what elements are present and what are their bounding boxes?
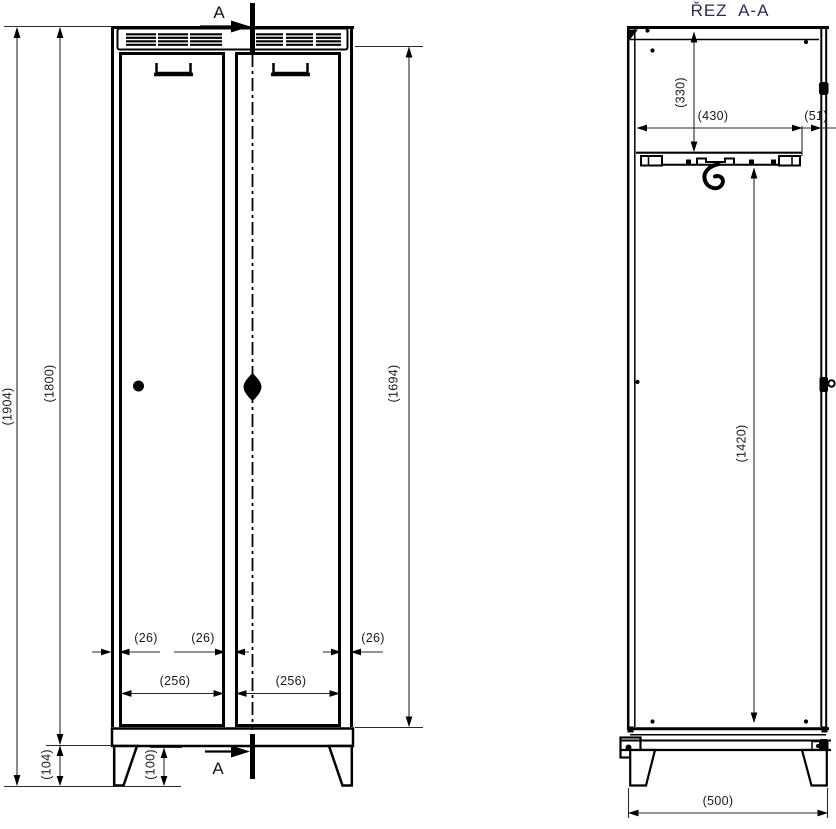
screw-dot: [650, 719, 654, 723]
arrowhead: [818, 810, 829, 817]
vent-slat-group: [256, 34, 283, 45]
technical-drawing-locker: ŘEZ A-A A A (1904) (1800) (104) (100) (1…: [0, 0, 836, 829]
section-back-foot: [630, 750, 655, 786]
lock-ring: [828, 380, 834, 386]
right-door-lock-icon: [244, 373, 262, 401]
dim-label-hanging-height: (1420): [736, 414, 749, 474]
dim-label-plinth-height: (104): [41, 735, 54, 795]
screw-dot: [645, 28, 649, 32]
section-marker-top: A: [205, 4, 233, 22]
arrowhead: [637, 125, 648, 132]
arrowhead: [57, 746, 64, 757]
arrowhead: [101, 649, 112, 656]
arrowhead: [161, 776, 168, 786]
bolt: [749, 160, 754, 165]
front-right-foot: [329, 746, 352, 786]
section-view-title: ŘEZ A-A: [630, 2, 830, 20]
arrowhead: [792, 125, 803, 132]
bolt: [686, 160, 691, 165]
corner-gusset: [630, 30, 639, 41]
vent-slat-group: [190, 34, 222, 45]
dim-label-right-door-width: (256): [261, 675, 321, 688]
dim-label-shelf-width: (430): [683, 110, 743, 123]
arrowhead: [406, 47, 413, 58]
dim-label-foot-height: (100): [145, 735, 158, 795]
coat-hook-icon: [704, 164, 723, 188]
card-holder-left: [157, 63, 191, 73]
hinge-top: [819, 82, 829, 95]
dim-label-front-gap: (51): [794, 110, 836, 123]
screw-dot: [650, 48, 654, 52]
screw-dot: [804, 719, 808, 723]
arrowhead: [406, 717, 413, 728]
arrowhead: [751, 713, 758, 724]
screw-dot: [635, 380, 639, 384]
screw-dot: [804, 40, 808, 44]
dim-label-gap-left: (26): [124, 632, 168, 645]
front-left-foot: [114, 746, 137, 786]
base-bolt-right: [816, 744, 820, 748]
arrowhead: [691, 32, 698, 43]
shelf-bracket-right: [779, 156, 800, 166]
vent-slat-group: [126, 34, 156, 45]
dim-label-overall-depth: (500): [688, 795, 748, 808]
arrowhead: [121, 690, 132, 697]
vent-slat-group: [316, 34, 341, 45]
section-marker-bottom: A: [204, 760, 232, 778]
shelf-bracket-left: [641, 156, 662, 166]
arrowhead: [751, 168, 758, 179]
dim-label-gap-right: (26): [351, 632, 395, 645]
section-front-foot: [802, 750, 827, 786]
front-view: [4, 3, 423, 787]
corner-blob: [628, 727, 634, 733]
arrowhead: [14, 775, 21, 786]
door-lock-section: [820, 377, 829, 392]
dim-label-left-door-width: (256): [145, 675, 205, 688]
bolt: [771, 160, 776, 165]
section-arrow-top-head: [231, 21, 250, 33]
arrowhead: [691, 142, 698, 153]
dim-label-total-height: (1904): [2, 377, 15, 437]
arrowhead: [14, 27, 21, 38]
dim-label-door-height: (1694): [388, 354, 401, 414]
drawing-linework: [0, 0, 836, 829]
arrowhead: [628, 810, 639, 817]
arrowhead: [161, 748, 168, 759]
arrowhead: [811, 125, 822, 132]
vent-slat-group: [286, 34, 313, 45]
section-arrow-bottom-head: [231, 746, 250, 758]
card-holder-right: [274, 63, 308, 73]
vent-slat-group: [158, 34, 188, 45]
dim-label-body-height: (1800): [44, 354, 57, 414]
dim-label-gap-center: (26): [181, 632, 225, 645]
arrowhead: [57, 27, 64, 38]
section-view: [621, 26, 836, 818]
arrowhead: [57, 734, 64, 745]
corner-blob: [822, 727, 828, 733]
arrowhead: [57, 776, 64, 786]
